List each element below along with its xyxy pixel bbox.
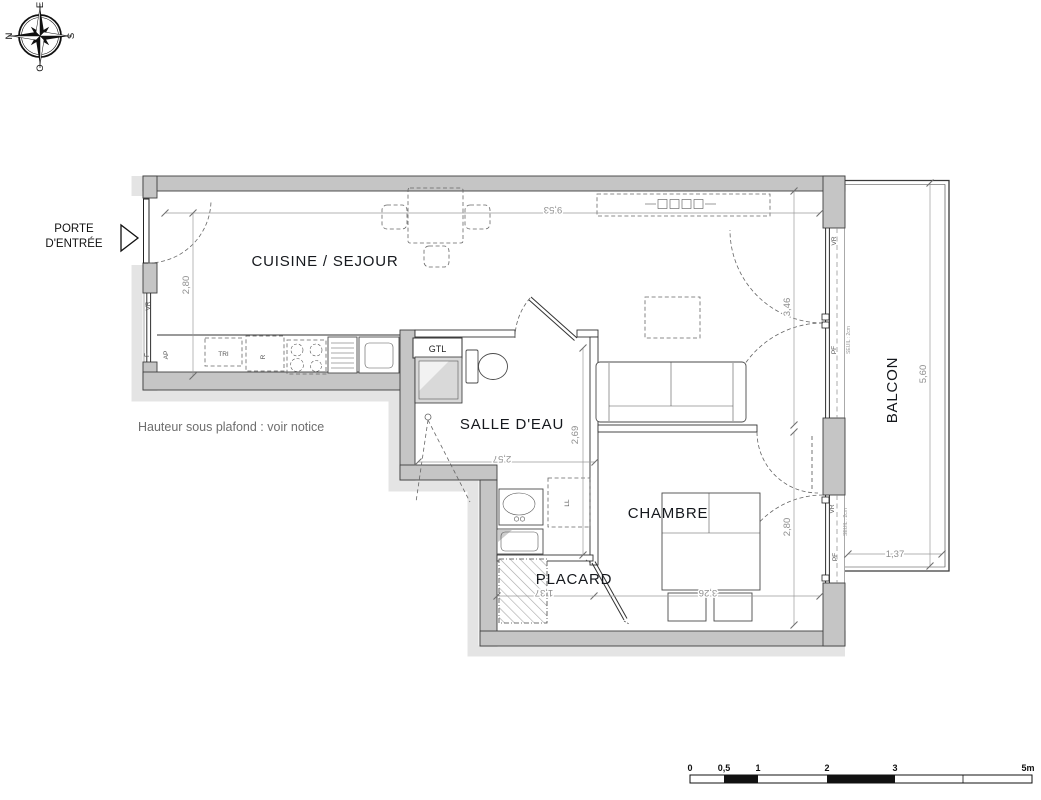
room-label-placard: PLACARD xyxy=(536,571,612,588)
seuil-note: SEUIL : 2cm xyxy=(843,508,849,536)
seuil-note: SEUIL : 2cm xyxy=(846,326,852,354)
room-label-cuisine-sejour: CUISINE / SEJOUR xyxy=(252,253,399,270)
wall-bottom xyxy=(480,631,845,646)
entrance-label-line1: PORTE xyxy=(54,223,94,235)
sofa xyxy=(596,362,746,422)
chambre-door-swing-arc xyxy=(757,432,818,493)
entrance-door-swing-arc xyxy=(148,200,211,263)
balcony: BALCON 5,60 1,37 xyxy=(845,180,950,572)
window-label-f: F xyxy=(144,353,151,357)
window-handle xyxy=(822,575,829,581)
entrance-label: PORTE D'ENTRÉE xyxy=(45,223,138,251)
svg-text:1,37: 1,37 xyxy=(886,549,905,560)
window-label-ap: AP xyxy=(163,351,170,360)
ceiling-height-note: Hauteur sous plafond : voir notice xyxy=(138,420,324,434)
compass-letter-o: O xyxy=(35,64,46,71)
wall-left-a xyxy=(143,176,157,198)
partition-sde-top-corner xyxy=(577,330,598,337)
kitchen-counter: TRI R xyxy=(157,335,400,374)
window-swing-arc xyxy=(730,230,823,323)
dim-chambre-width: 3,26 xyxy=(591,587,824,600)
floor-plan-page: BALCON 5,60 1,37 xyxy=(0,0,1041,800)
chair xyxy=(465,205,490,229)
fridge-box xyxy=(246,336,284,371)
dim-sejour-width: 9,53 xyxy=(162,204,824,217)
partition-sde-top xyxy=(415,330,515,337)
dim-cuisine-depth: 2,80 xyxy=(181,210,197,380)
dim-balcon-depth: 5,60 xyxy=(918,180,934,570)
chair xyxy=(382,205,407,229)
sde-door-swing-arc xyxy=(515,297,531,338)
chair xyxy=(424,246,449,267)
window-label-pf: PF xyxy=(832,553,839,561)
entrance-door-leaf xyxy=(144,199,150,263)
window-label-pf: PF xyxy=(831,346,838,354)
svg-text:2,57: 2,57 xyxy=(493,453,512,464)
washbasin xyxy=(499,489,543,525)
room-label-balcon: BALCON xyxy=(884,357,901,424)
coffee-table xyxy=(645,297,700,338)
bedside-table xyxy=(714,593,752,621)
entrance-door xyxy=(144,199,212,263)
toilet xyxy=(466,350,508,383)
window-label-vr: VR xyxy=(829,504,836,513)
floor-plan-svg: BALCON 5,60 1,37 xyxy=(0,0,1041,800)
scale-tick-1: 1 xyxy=(755,763,760,773)
sink-drainer xyxy=(328,337,357,373)
wall-top xyxy=(143,176,845,191)
scale-tick-5m: 5m xyxy=(1021,763,1034,773)
shower-screen-pivot xyxy=(425,414,431,420)
toilet-bowl xyxy=(479,354,508,380)
washer-label: LL xyxy=(564,499,571,507)
window-label-vr: VR xyxy=(831,236,838,245)
window-handle xyxy=(822,322,829,328)
gtl-unit: GTL xyxy=(413,338,462,358)
dim-sde-width: 2,57 xyxy=(415,453,599,466)
room-label-chambre: CHAMBRE xyxy=(628,505,709,522)
placard-door xyxy=(586,560,629,624)
wall-right-b xyxy=(823,418,845,495)
washing-machine: LL xyxy=(548,478,590,527)
svg-text:2,80: 2,80 xyxy=(782,518,793,537)
svg-text:1,37: 1,37 xyxy=(535,587,554,598)
bathroom-cabinet xyxy=(497,529,543,554)
window-handle xyxy=(822,497,829,503)
toilet-tank xyxy=(466,350,478,383)
waste-sorting-label: TRI xyxy=(218,351,229,358)
window-label-vr: VR xyxy=(145,301,152,310)
gtl-label: GTL xyxy=(429,344,447,354)
fridge-label: R xyxy=(260,354,267,359)
dim-sde-depth: 2,69 xyxy=(570,345,587,559)
svg-text:2,69: 2,69 xyxy=(570,426,581,445)
sde-door-leaf xyxy=(531,297,577,338)
partition-sejour-chambre xyxy=(598,425,757,432)
compass-letter-n: N xyxy=(4,32,15,39)
compass-letter-e: E xyxy=(35,2,46,8)
wall-sde-bottom xyxy=(400,465,497,480)
wall-lower-left xyxy=(480,480,497,646)
scale-tick-05: 0,5 xyxy=(718,763,731,773)
entrance-label-line2: D'ENTRÉE xyxy=(45,237,102,250)
svg-text:3,26: 3,26 xyxy=(699,587,718,598)
cooktop xyxy=(287,340,326,374)
cuisine-window: VR F AP xyxy=(144,293,170,362)
dim-chambre-depth: 2,80 xyxy=(782,429,798,629)
svg-text:5,60: 5,60 xyxy=(918,365,929,384)
scale-tick-3: 3 xyxy=(892,763,897,773)
room-label-salle-deau: SALLE D'EAU xyxy=(460,416,564,433)
sejour-french-window: VR PF SEUIL : 2cm xyxy=(728,228,852,418)
scale-tick-0: 0 xyxy=(687,763,692,773)
scale-tick-2: 2 xyxy=(824,763,829,773)
sde-door xyxy=(515,297,577,341)
dim-sejour-depth: 3,46 xyxy=(782,188,798,429)
wall-right-a xyxy=(823,176,845,228)
wall-cuisine-bottom xyxy=(143,372,415,390)
chambre-door xyxy=(757,432,818,493)
compass-rose-icon: E N S O xyxy=(4,2,77,72)
window-handle xyxy=(822,314,829,320)
svg-text:3,46: 3,46 xyxy=(782,298,793,317)
wall-left-b xyxy=(143,263,157,293)
svg-text:9,53: 9,53 xyxy=(544,204,563,215)
wall-right-c xyxy=(823,583,845,646)
scale-bar: 0 0,5 1 2 3 5m xyxy=(687,763,1034,783)
svg-text:2,80: 2,80 xyxy=(181,276,192,295)
compass-letter-s: S xyxy=(66,33,77,39)
